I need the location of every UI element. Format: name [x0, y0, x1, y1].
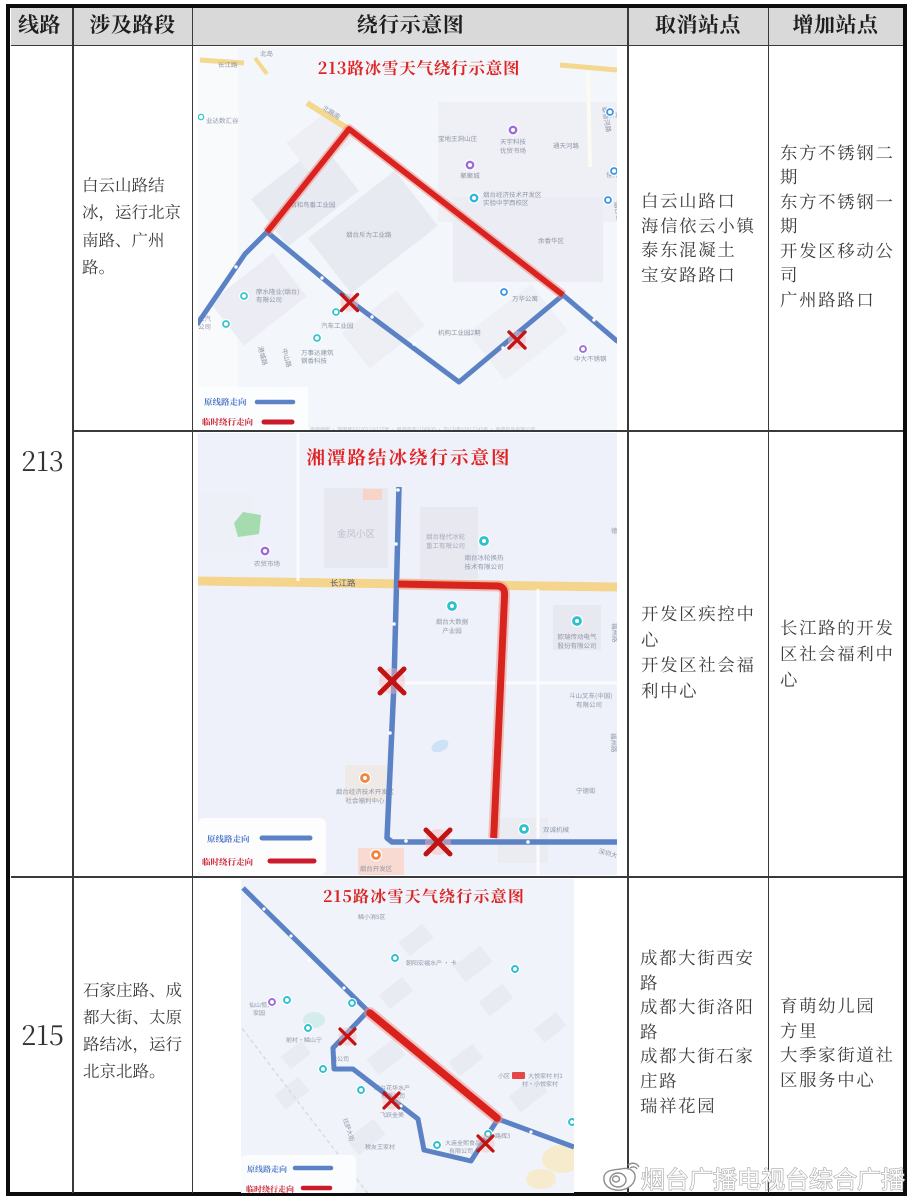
svg-text:中大不锈钢: 中大不锈钢 — [574, 353, 607, 363]
svg-text:汽车工业园: 汽车工业园 — [321, 320, 354, 330]
svg-text:有限公司: 有限公司 — [256, 294, 282, 304]
svg-text:临时绕行走向: 临时绕行走向 — [246, 1184, 294, 1193]
svg-text:股份有限公司: 股份有限公司 — [558, 640, 597, 650]
svg-text:临时绕行走向: 临时绕行走向 — [202, 856, 254, 868]
svg-text:德: 德 — [611, 525, 617, 535]
svg-text:技术有限公司: 技术有限公司 — [465, 561, 504, 571]
svg-text:原线路走向: 原线路走向 — [204, 396, 247, 408]
svg-text:机构工业园2期: 机构工业园2期 — [438, 327, 481, 337]
svg-text:有限公司: 有限公司 — [449, 1146, 473, 1155]
svg-text:路辉3: 路辉3 — [495, 1131, 510, 1140]
svg-text:农贸市场: 农贸市场 — [254, 558, 281, 568]
svg-text:烟台斥为工业路: 烟台斥为工业路 — [346, 229, 392, 239]
svg-text:社会福利中心: 社会福利中心 — [346, 795, 386, 805]
svg-text:村·小悦家村: 村·小悦家村 — [522, 1079, 558, 1088]
svg-text:长江路: 长江路 — [218, 59, 238, 69]
svg-text:通天河路: 通天河路 — [553, 140, 580, 150]
svg-text:税友王家村: 税友王家村 — [365, 1142, 395, 1151]
svg-text:有限公司: 有限公司 — [576, 699, 602, 709]
svg-text:宁德街: 宁德街 — [576, 785, 596, 795]
svg-text:朝阳宏福水产 · 卡: 朝阳宏福水产 · 卡 — [406, 958, 457, 967]
svg-text:聚聚城: 聚聚城 — [460, 170, 480, 180]
svg-text:原线路走向: 原线路走向 — [247, 1164, 287, 1175]
svg-text:宝地王洞山庄: 宝地王洞山庄 — [438, 133, 478, 143]
svg-text:213路冰雪天气绕行示意图: 213路冰雪天气绕行示意图 — [318, 55, 521, 79]
svg-text:金凤小区: 金凤小区 — [337, 526, 376, 540]
svg-text:前村·鳞山亍: 前村·鳞山亍 — [286, 1035, 322, 1044]
svg-text:烟台广播电视台综合广播: 烟台广播电视台综合广播 — [641, 1160, 905, 1195]
svg-text:重工有限公司: 重工有限公司 — [426, 540, 465, 550]
svg-text:福州路: 福州路 — [609, 733, 617, 753]
svg-text:湘潭路结冰绕行示意图: 湘潭路结冰绕行示意图 — [306, 444, 511, 470]
svg-text:业达数汇谷: 业达数汇谷 — [206, 115, 239, 125]
svg-text:万华公寓: 万华公寓 — [512, 293, 538, 303]
svg-text:北岛: 北岛 — [260, 48, 273, 58]
svg-text:临时绕行走向: 临时绕行走向 — [202, 416, 254, 428]
svg-text:高德地图 · 审图号GS(2021)6375号 · 甲测资字: 高德地图 · 审图号GS(2021)6375号 · 甲测资字1100930 · … — [310, 426, 535, 430]
svg-text:215路冰雪天气绕行示意图: 215路冰雪天气绕行示意图 — [323, 884, 525, 907]
svg-text:原线路走向: 原线路走向 — [207, 833, 250, 845]
svg-text:飞跃全美: 飞跃全美 — [380, 1110, 404, 1119]
svg-text:小区: 小区 — [498, 1071, 510, 1080]
svg-text:产业园: 产业园 — [442, 625, 462, 635]
svg-text:优贸书场: 优贸书场 — [500, 145, 527, 155]
svg-text:福州路: 福州路 — [610, 623, 617, 643]
svg-text:鳞小消5区: 鳞小消5区 — [358, 912, 385, 921]
svg-text:余香华区: 余香华区 — [538, 235, 565, 245]
svg-text:钢香科技: 钢香科技 — [301, 355, 328, 365]
svg-text:双诚机械: 双诚机械 — [543, 824, 570, 834]
svg-text:妇幼保健院: 妇幼保健院 — [360, 872, 393, 875]
svg-text:家园: 家园 — [253, 1008, 265, 1017]
svg-text:长江路: 长江路 — [330, 577, 356, 589]
svg-text:实验中学西校区: 实验中学西校区 — [483, 197, 529, 207]
